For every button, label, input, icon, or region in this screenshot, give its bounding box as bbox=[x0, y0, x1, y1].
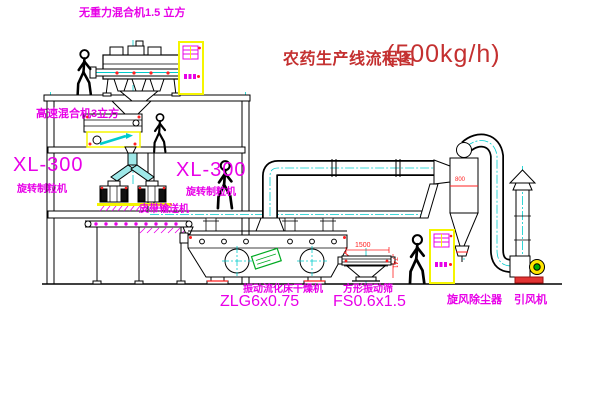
label-dryer-model: ZLG6x0.75 bbox=[220, 294, 299, 310]
diagram-title-capacity: (500kg/h) bbox=[386, 42, 501, 67]
label-cyclone: 旋风除尘器 bbox=[447, 295, 502, 306]
control-cabinet-bottom bbox=[430, 230, 454, 283]
person-ground bbox=[410, 235, 424, 283]
label-top-mixer: 无重力混合机1.5 立方 bbox=[79, 8, 185, 19]
label-granulator-model-center: XL-300 bbox=[176, 160, 247, 180]
process-flow-diagram: 无重力混合机1.5 立方 农药生产线流程图 (500kg/h) 高速混合机3立方… bbox=[0, 0, 600, 403]
induced-draft-fan bbox=[510, 256, 545, 283]
dimension-sieve-length: 1500 bbox=[355, 242, 371, 249]
person-roof bbox=[78, 50, 91, 94]
label-granulator-name-center: 旋转制粒机 bbox=[186, 188, 236, 198]
person-floor2 bbox=[154, 114, 165, 152]
belt-conveyor bbox=[85, 221, 193, 284]
label-granulator-model-left: XL-300 bbox=[13, 155, 84, 175]
label-fan: 引风机 bbox=[514, 295, 547, 306]
dimension-cyclone-diameter: 800 bbox=[455, 177, 465, 183]
label-belt-conveyor: 皮带输送机 bbox=[139, 205, 189, 215]
granulator-right bbox=[138, 181, 166, 202]
riser-pipe bbox=[256, 159, 438, 231]
vibrating-sieve bbox=[338, 247, 395, 281]
label-granulator-name-left: 旋转制粒机 bbox=[17, 185, 67, 195]
label-high-speed-mixer: 高速混合机3立方 bbox=[36, 109, 119, 120]
dimension-sieve-height: 741 bbox=[391, 257, 398, 269]
granulator-left bbox=[100, 181, 128, 202]
fluid-bed-dryer bbox=[180, 231, 347, 284]
label-sieve-model: FS0.6x1.5 bbox=[333, 294, 406, 310]
control-cabinet-top bbox=[179, 42, 203, 94]
